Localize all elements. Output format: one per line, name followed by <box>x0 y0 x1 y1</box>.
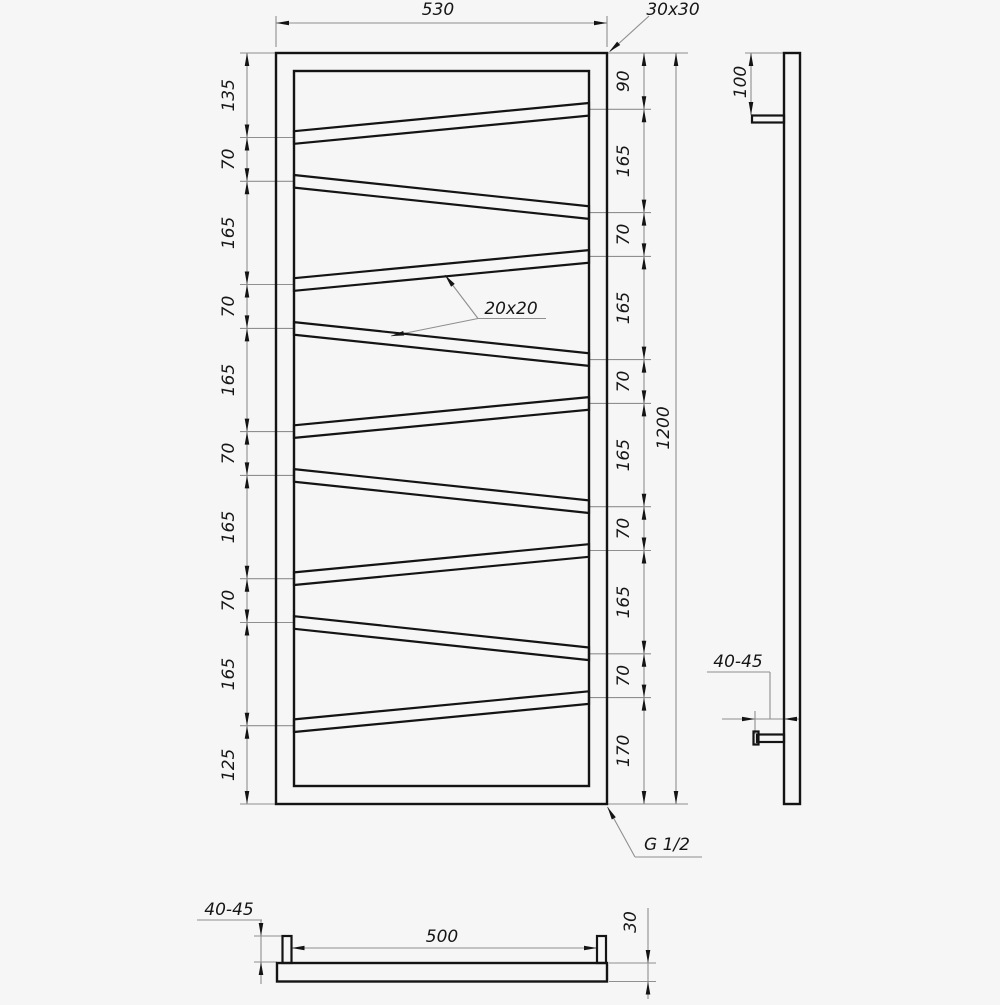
left-chain-dim: 70 <box>219 590 239 612</box>
dim-depth: 30 <box>621 911 641 933</box>
dim-mount-spacing: 500 <box>426 927 458 947</box>
left-chain-dim: 165 <box>219 364 239 396</box>
label-thread: G 1/2 <box>644 835 690 855</box>
dimension-arrow <box>642 494 647 507</box>
dimension-arrow <box>642 390 647 403</box>
dimension-arrow <box>642 698 647 711</box>
dimension-arrow <box>642 347 647 360</box>
dimension-arrow <box>642 213 647 226</box>
right-chain-dim: 90 <box>614 70 634 92</box>
dimension-arrow <box>642 685 647 698</box>
dimension-arrow <box>245 53 250 66</box>
crossbar <box>294 175 589 219</box>
left-chain-dim: 165 <box>219 511 239 543</box>
dimension-arrow <box>245 462 250 475</box>
right-chain-dim: 70 <box>614 518 634 540</box>
side-profile-bar <box>784 53 800 804</box>
right-chain-dim: 165 <box>614 292 634 324</box>
dimension-arrow <box>259 962 264 975</box>
right-chain-dim: 165 <box>614 586 634 618</box>
left-chain-dim: 70 <box>219 149 239 171</box>
dimension-arrow <box>642 551 647 564</box>
left-chain-dim: 70 <box>219 296 239 318</box>
crossbar <box>294 250 589 291</box>
dimension-arrow <box>608 807 616 819</box>
dimension-arrow <box>245 610 250 623</box>
dimension-arrow <box>245 168 250 181</box>
dimension-arrow <box>749 53 754 66</box>
dim-side-top-offset: 100 <box>731 66 751 98</box>
dimension-arrow <box>642 507 647 520</box>
dimension-arrow <box>646 982 651 995</box>
dimension-arrow <box>245 566 250 579</box>
dimension-arrow <box>245 272 250 285</box>
dimension-arrow <box>245 125 250 138</box>
right-chain-dim: 70 <box>614 665 634 687</box>
dimension-arrow <box>749 102 754 115</box>
dimension-arrow <box>674 791 679 804</box>
technical-drawing: 530 30x30 20x20 1200 G 1/2 135 70 165 70… <box>0 0 1000 1000</box>
bottom-right-stud <box>597 936 606 963</box>
side-top-bracket <box>752 116 784 123</box>
drawing-page: 530 30x30 20x20 1200 G 1/2 135 70 165 70… <box>0 0 1000 1000</box>
dimension-arrow <box>642 53 647 66</box>
label-bar-profile: 20x20 <box>484 299 537 319</box>
dimension-lines <box>197 16 800 999</box>
label-frame-profile: 30x30 <box>646 0 699 20</box>
dimension-arrow <box>245 791 250 804</box>
dimension-arrow <box>245 623 250 636</box>
dimension-arrow <box>245 285 250 298</box>
dimension-arrow <box>642 200 647 213</box>
left-chain-dim: 135 <box>219 79 239 111</box>
dimension-arrow <box>245 328 250 341</box>
dimension-arrow <box>742 717 755 722</box>
dimension-arrow <box>245 419 250 432</box>
geometry <box>276 53 800 982</box>
dimension-arrow <box>245 181 250 194</box>
dimension-arrow <box>642 360 647 373</box>
dimension-arrow <box>245 475 250 488</box>
dimension-arrow <box>642 538 647 551</box>
right-chain-dim: 165 <box>614 145 634 177</box>
dimension-arrow <box>245 432 250 445</box>
right-chain-dim: 170 <box>614 735 634 767</box>
front-frame-inner <box>294 71 589 786</box>
right-chain-dim: 165 <box>614 439 634 471</box>
dimension-arrow <box>245 579 250 592</box>
dim-bottom-wall-distance: 40-45 <box>204 900 253 920</box>
dimension-arrow <box>784 717 797 722</box>
dimension-arrow <box>276 21 289 26</box>
dimension-arrow <box>584 946 597 951</box>
dimension-arrows <box>245 21 797 995</box>
crossbar <box>294 103 589 144</box>
dimension-arrow <box>674 53 679 66</box>
left-chain-dim: 165 <box>219 217 239 249</box>
dimension-arrow <box>245 713 250 726</box>
dimension-arrow <box>594 21 607 26</box>
crossbar <box>294 691 589 732</box>
dim-height: 1200 <box>654 406 674 449</box>
dimension-arrow <box>642 791 647 804</box>
crossbar <box>294 322 589 366</box>
right-chain-dim: 70 <box>614 371 634 393</box>
dimension-arrow <box>292 946 305 951</box>
dimension-arrow <box>245 315 250 328</box>
dim-side-wall-distance: 40-45 <box>713 652 762 672</box>
crossbar <box>294 397 589 438</box>
dimension-arrow <box>646 950 651 963</box>
front-frame-outer <box>276 53 607 804</box>
crossbar <box>294 544 589 585</box>
right-chain-dim: 70 <box>614 224 634 246</box>
left-chain-dim: 70 <box>219 443 239 465</box>
dimension-arrow <box>642 403 647 416</box>
left-chain-dim: 165 <box>219 658 239 690</box>
bottom-left-stud <box>283 936 292 963</box>
crossbars <box>294 103 589 732</box>
left-chain-dim: 125 <box>219 749 239 781</box>
dimension-arrow <box>259 923 264 936</box>
crossbar <box>294 616 589 660</box>
dimension-arrow <box>245 726 250 739</box>
side-bottom-bracket <box>757 735 784 743</box>
dimension-arrow <box>609 42 620 52</box>
crossbar <box>294 469 589 513</box>
dimension-arrow <box>642 641 647 654</box>
dimension-arrow <box>642 256 647 269</box>
dimension-arrow <box>245 138 250 151</box>
dimension-arrow <box>642 243 647 256</box>
dimension-arrow <box>642 96 647 109</box>
dimension-arrow <box>642 109 647 122</box>
dimension-arrow <box>642 654 647 667</box>
dim-width: 530 <box>422 0 454 20</box>
bottom-profile-bar <box>277 963 607 982</box>
